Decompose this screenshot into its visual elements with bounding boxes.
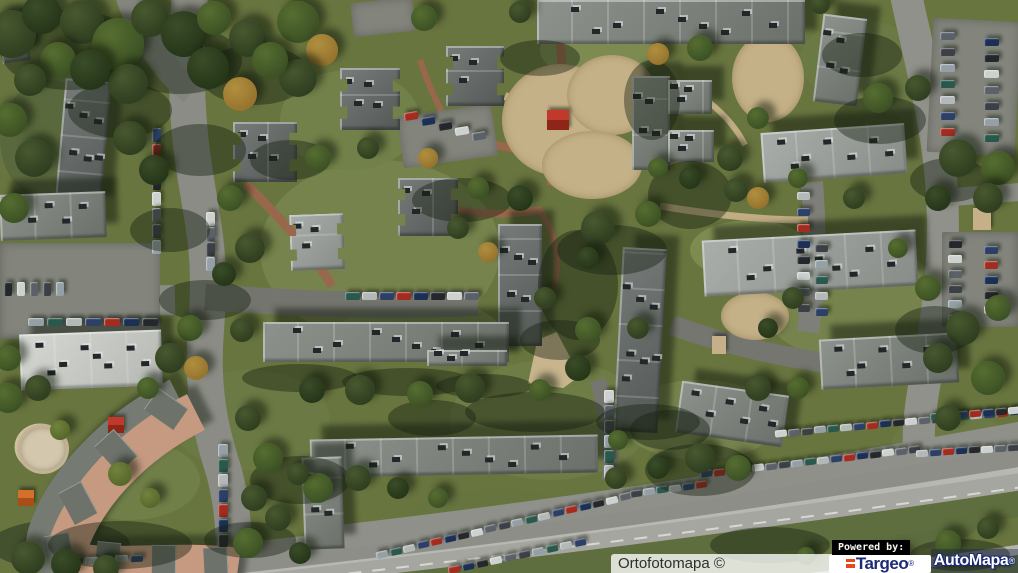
roof-vent — [514, 255, 522, 260]
parked-car — [984, 134, 999, 142]
roof-vent — [699, 24, 707, 29]
tree-canopy — [233, 528, 263, 558]
tree-canopy — [447, 217, 469, 239]
parked-car — [817, 456, 830, 464]
parked-car — [4, 282, 12, 296]
tree-canopy — [184, 356, 208, 380]
tree-canopy — [50, 420, 70, 440]
apartment-building — [289, 213, 345, 271]
tree-shadow — [624, 60, 680, 140]
roof-vent — [460, 351, 468, 356]
roof-vent — [364, 82, 372, 87]
tree-canopy — [223, 77, 257, 111]
roof-vent — [412, 344, 420, 349]
parked-car — [104, 318, 120, 326]
tree-canopy — [915, 275, 941, 301]
parked-car — [856, 451, 869, 459]
tree-canopy — [252, 42, 288, 78]
roof-vent — [879, 347, 887, 352]
parked-car — [984, 86, 999, 94]
parked-car — [218, 444, 228, 457]
tree-canopy — [428, 488, 448, 508]
roof-vent — [293, 328, 301, 333]
parked-car — [955, 447, 967, 455]
automapa-registered-mark: ® — [1009, 557, 1016, 566]
roof-vent — [721, 30, 729, 35]
roof-vent — [392, 457, 400, 462]
parked-car — [775, 429, 788, 437]
tree-canopy — [939, 139, 977, 177]
tree-canopy — [14, 64, 46, 96]
roof-vent — [768, 421, 777, 427]
roof-vent — [865, 247, 873, 252]
tree-canopy — [745, 375, 771, 401]
roof-vent — [559, 455, 567, 460]
parked-car — [396, 292, 411, 300]
roof-vent — [78, 204, 86, 209]
parked-car — [984, 38, 999, 46]
roof-vent — [354, 101, 362, 106]
tree-canopy — [407, 381, 433, 407]
small-roof-structure — [18, 490, 34, 506]
tree-canopy — [529, 379, 551, 401]
roof-vent — [652, 356, 660, 361]
roof-vent — [369, 463, 377, 468]
parked-car — [984, 70, 999, 78]
roof-vent — [678, 17, 686, 22]
roof-vent — [728, 248, 736, 253]
tree-canopy — [217, 185, 243, 211]
roof-vent — [475, 343, 483, 348]
parked-car — [379, 292, 394, 300]
tree-canopy — [788, 168, 808, 188]
parked-car — [206, 242, 215, 256]
tree-canopy — [534, 287, 556, 309]
parked-car — [984, 118, 999, 126]
tree-canopy — [575, 317, 601, 343]
apartment-building — [537, 0, 805, 44]
roof-vent — [310, 227, 318, 232]
parked-car — [982, 408, 995, 416]
tree-canopy — [187, 47, 229, 89]
roof-vent — [684, 87, 692, 92]
tree-canopy — [647, 457, 669, 479]
tree-canopy — [387, 477, 409, 499]
tree-canopy — [758, 318, 778, 338]
roof-vent — [126, 345, 134, 350]
tree-canopy — [725, 455, 751, 481]
tree-canopy — [140, 488, 160, 508]
roof-vent — [313, 348, 321, 353]
parked-car — [940, 96, 955, 104]
tree-canopy — [971, 361, 1005, 395]
parked-car — [447, 565, 460, 573]
roof-vent — [438, 445, 446, 450]
roof-vent — [571, 7, 579, 12]
tree-canopy — [345, 375, 375, 405]
roof-vent — [759, 405, 768, 411]
targeo-registered-mark: ® — [908, 559, 914, 569]
tree-canopy — [11, 541, 45, 573]
roof-vent — [373, 103, 381, 108]
ortho-attribution-text: Ortofotomapa © Geoportal.gov.pl — [618, 555, 727, 573]
tree-canopy — [299, 377, 325, 403]
parked-car — [895, 447, 908, 455]
roof-vent — [62, 218, 70, 223]
parked-car — [464, 292, 479, 300]
roof-vent — [104, 363, 112, 368]
tree-canopy — [235, 233, 265, 263]
parking-lot — [350, 0, 415, 37]
tree-canopy — [977, 517, 999, 539]
roof-vent — [742, 11, 750, 16]
parked-car — [28, 318, 44, 326]
tree-canopy — [981, 151, 1015, 185]
roof-vent — [823, 139, 831, 145]
parked-car — [984, 102, 999, 110]
roof-vent — [885, 151, 893, 157]
roof-vent — [725, 399, 734, 405]
roof-vent — [372, 330, 380, 335]
roof-vent — [678, 146, 686, 151]
roof-vent — [623, 285, 631, 290]
parked-car — [797, 224, 810, 232]
roof-vent — [508, 461, 516, 466]
tree-canopy — [747, 187, 769, 209]
parked-car — [981, 445, 993, 453]
tree-canopy — [108, 462, 132, 486]
tree-canopy — [507, 185, 533, 211]
parked-car — [940, 128, 955, 136]
roof-vent — [763, 266, 771, 271]
tree-canopy — [108, 64, 148, 104]
parked-car — [66, 318, 82, 326]
sand-playground — [732, 34, 804, 122]
parked-car — [940, 32, 955, 40]
parked-car — [778, 460, 791, 468]
roof-vent — [28, 217, 36, 222]
parked-car — [948, 255, 962, 263]
parked-car — [218, 489, 228, 502]
parked-car — [843, 453, 856, 461]
parked-car — [1008, 406, 1018, 414]
parked-car — [853, 422, 866, 430]
parked-car — [984, 261, 998, 269]
parked-car — [995, 407, 1008, 415]
tree-canopy — [212, 262, 236, 286]
roof-vent — [258, 136, 266, 141]
parked-car — [47, 318, 63, 326]
tree-canopy — [863, 83, 893, 113]
parked-car — [942, 448, 954, 456]
parked-car — [804, 457, 817, 465]
roof-vent — [613, 23, 621, 28]
parked-car — [840, 423, 853, 431]
roof-vent — [656, 9, 664, 14]
tree-canopy — [253, 443, 283, 473]
sand-playground — [721, 292, 789, 340]
parked-car — [869, 450, 882, 458]
roof-vent — [801, 156, 809, 162]
roof-vent — [640, 359, 648, 364]
roof-vent — [691, 391, 700, 397]
tree-canopy — [306, 34, 338, 66]
tree-canopy — [888, 238, 908, 258]
roof-vent — [777, 139, 785, 145]
aerial-map[interactable]: Ortofotomapa © Geoportal.gov.pl Powered … — [0, 0, 1018, 573]
tree-canopy — [605, 467, 627, 489]
roof-vent — [747, 275, 755, 280]
tree-shadow — [130, 208, 210, 252]
apartment-building — [668, 130, 714, 162]
parked-car — [797, 208, 810, 216]
roof-vent — [670, 134, 678, 139]
tree-canopy — [455, 373, 485, 403]
tree-canopy — [946, 311, 980, 345]
parked-car — [788, 428, 801, 436]
roof-vent — [311, 507, 319, 512]
parked-car — [142, 318, 158, 326]
parked-car — [123, 318, 139, 326]
roof-vent — [621, 377, 629, 382]
roof-vent — [141, 361, 149, 366]
tree-canopy — [287, 463, 309, 485]
parked-car — [218, 459, 228, 472]
roof-vent — [797, 248, 805, 253]
powered-by-label: Powered by: — [832, 540, 910, 555]
parked-car — [345, 292, 360, 300]
tree-canopy — [973, 183, 1003, 213]
tree-canopy — [0, 193, 29, 223]
roof-vent — [83, 156, 91, 162]
tree-canopy — [905, 75, 931, 101]
roof-vent — [902, 363, 910, 368]
roof-vent — [35, 343, 43, 348]
parked-car — [447, 292, 462, 300]
parked-car — [797, 240, 810, 248]
parked-car — [30, 282, 38, 296]
tree-shadow — [822, 33, 902, 77]
roof-vent — [447, 356, 455, 361]
tree-canopy — [627, 317, 649, 339]
roof-vent — [95, 155, 103, 161]
tree-canopy — [565, 355, 591, 381]
parked-car — [866, 421, 879, 429]
tree-canopy — [15, 139, 53, 177]
tree-canopy — [843, 187, 865, 209]
parked-car — [948, 285, 962, 293]
parked-car — [948, 240, 962, 248]
tree-canopy — [648, 158, 668, 178]
roof-vent — [69, 150, 77, 156]
tree-canopy — [577, 247, 599, 269]
tree-canopy — [357, 137, 379, 159]
roof-vent — [592, 29, 600, 34]
roof-vent — [507, 292, 515, 297]
tree-canopy — [139, 155, 169, 185]
tree-shadow — [159, 280, 251, 320]
tree-canopy — [687, 35, 713, 61]
parked-car — [968, 446, 980, 454]
tree-shadow — [412, 178, 512, 222]
roof-vent — [48, 371, 56, 376]
roof-vent — [832, 265, 840, 270]
tree-canopy — [787, 377, 809, 399]
roof-vent — [44, 203, 52, 208]
roof-vent — [392, 337, 400, 342]
roof-vent — [521, 297, 529, 302]
tree-canopy — [155, 343, 185, 373]
roof-vent — [636, 296, 644, 301]
tree-canopy — [265, 505, 291, 531]
tree-canopy — [289, 542, 311, 564]
tree-canopy — [985, 295, 1011, 321]
tree-canopy — [197, 1, 231, 35]
parked-car — [815, 276, 828, 284]
parked-car — [815, 244, 828, 252]
small-roof-structure — [712, 336, 726, 354]
parked-car — [969, 409, 982, 417]
parked-car — [152, 192, 161, 206]
parked-car — [815, 308, 828, 316]
tree-canopy — [747, 107, 769, 129]
tree-canopy — [467, 177, 489, 199]
roof-vent — [500, 248, 508, 253]
parked-car — [797, 272, 810, 280]
roof-vent — [626, 351, 634, 356]
automapa-wordmark: AutoMapa — [934, 552, 1009, 570]
parked-car — [940, 112, 955, 120]
tree-canopy — [923, 343, 953, 373]
tree-canopy — [70, 50, 110, 90]
roof-vent — [346, 444, 354, 449]
roof-vent — [849, 272, 857, 277]
ortho-attribution: Ortofotomapa © Geoportal.gov.pl — [611, 554, 834, 573]
parked-car — [940, 64, 955, 72]
tree-canopy — [935, 405, 961, 431]
tree-canopy — [177, 315, 203, 341]
roof-vent — [324, 511, 332, 516]
tree-canopy — [25, 375, 51, 401]
parked-car — [830, 454, 843, 462]
tree-shadow — [388, 400, 476, 436]
apartment-building — [446, 46, 504, 106]
roof-vent — [823, 30, 832, 36]
roof-vent — [59, 362, 67, 367]
tree-canopy — [925, 185, 951, 211]
tree-canopy — [724, 178, 748, 202]
parked-car — [797, 192, 810, 200]
tree-canopy — [782, 287, 804, 309]
automapa-logo[interactable]: AutoMapa ® — [931, 549, 1018, 573]
parked-car — [984, 276, 998, 284]
roof-vent — [434, 351, 442, 356]
tree-canopy — [717, 145, 743, 171]
parked-car — [994, 444, 1006, 452]
tree-canopy — [305, 145, 331, 171]
parked-car — [604, 390, 614, 403]
parked-car — [916, 450, 928, 458]
tree-canopy — [635, 201, 661, 227]
tree-canopy — [608, 430, 628, 450]
targeo-wordmark: Targeo — [856, 555, 908, 573]
tree-canopy — [345, 465, 371, 491]
roof-vent — [459, 78, 467, 83]
roof-vent — [706, 412, 715, 418]
tree-canopy — [581, 211, 615, 245]
parked-car — [801, 427, 814, 435]
targeo-logo[interactable]: Targeo ® — [829, 555, 931, 573]
roof-vent — [302, 244, 310, 249]
tree-canopy — [230, 318, 254, 342]
roof-vent — [857, 363, 865, 368]
parked-car — [940, 48, 955, 56]
parked-car — [413, 292, 428, 300]
tree-canopy — [509, 1, 531, 23]
parked-car — [948, 270, 962, 278]
roof-vent — [485, 457, 493, 462]
parked-car — [604, 450, 614, 463]
parked-car — [56, 282, 64, 296]
parked-car — [929, 449, 941, 457]
parked-car — [765, 462, 778, 470]
roof-vent — [740, 418, 749, 424]
tree-shadow — [500, 40, 580, 76]
tree-canopy — [478, 242, 498, 262]
roof-vent — [847, 371, 855, 376]
roof-vent — [333, 342, 341, 347]
roof-vent — [528, 260, 536, 265]
targeo-dash-icon — [846, 559, 855, 568]
parked-car — [797, 256, 810, 264]
tree-canopy — [113, 121, 147, 155]
parked-car — [430, 292, 445, 300]
parked-car — [43, 282, 51, 296]
apartment-building — [340, 68, 400, 130]
tree-canopy — [685, 443, 715, 473]
tree-canopy — [51, 549, 81, 573]
parked-car — [815, 292, 828, 300]
roof-vent — [81, 345, 89, 350]
parked-car — [218, 474, 228, 487]
roof-vent — [847, 155, 855, 161]
apartment-building — [702, 229, 919, 296]
small-roof-structure — [547, 110, 569, 130]
parked-car — [362, 292, 377, 300]
parked-car — [791, 459, 804, 467]
apartment-building — [427, 350, 507, 366]
tree-canopy — [647, 43, 669, 65]
tree-canopy — [679, 167, 701, 189]
tree-canopy — [137, 377, 159, 399]
tree-canopy — [241, 485, 267, 511]
parked-car — [918, 416, 931, 424]
roof-vent — [685, 136, 693, 141]
roof-vent — [461, 451, 469, 456]
roof-vent — [530, 445, 538, 450]
sand-playground — [542, 131, 642, 199]
roof-vent — [650, 304, 658, 309]
roof-vent — [92, 354, 100, 359]
parked-car — [1007, 443, 1018, 451]
roof-vent — [887, 261, 895, 266]
roof-vent — [769, 23, 777, 28]
roof-vent — [451, 332, 459, 337]
parked-car — [984, 246, 998, 254]
tree-canopy — [418, 148, 438, 168]
tree-canopy — [411, 5, 437, 31]
parked-car — [17, 282, 25, 296]
